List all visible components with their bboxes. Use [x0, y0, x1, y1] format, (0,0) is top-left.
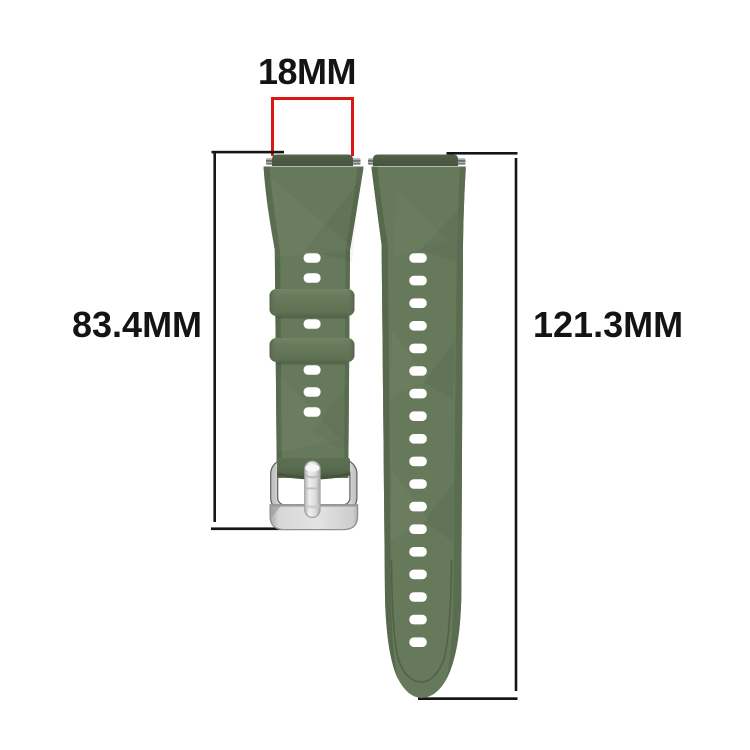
svg-text:83.4MM: 83.4MM	[72, 304, 202, 345]
svg-text:18MM: 18MM	[258, 51, 356, 92]
svg-text:121.3MM: 121.3MM	[533, 304, 683, 345]
